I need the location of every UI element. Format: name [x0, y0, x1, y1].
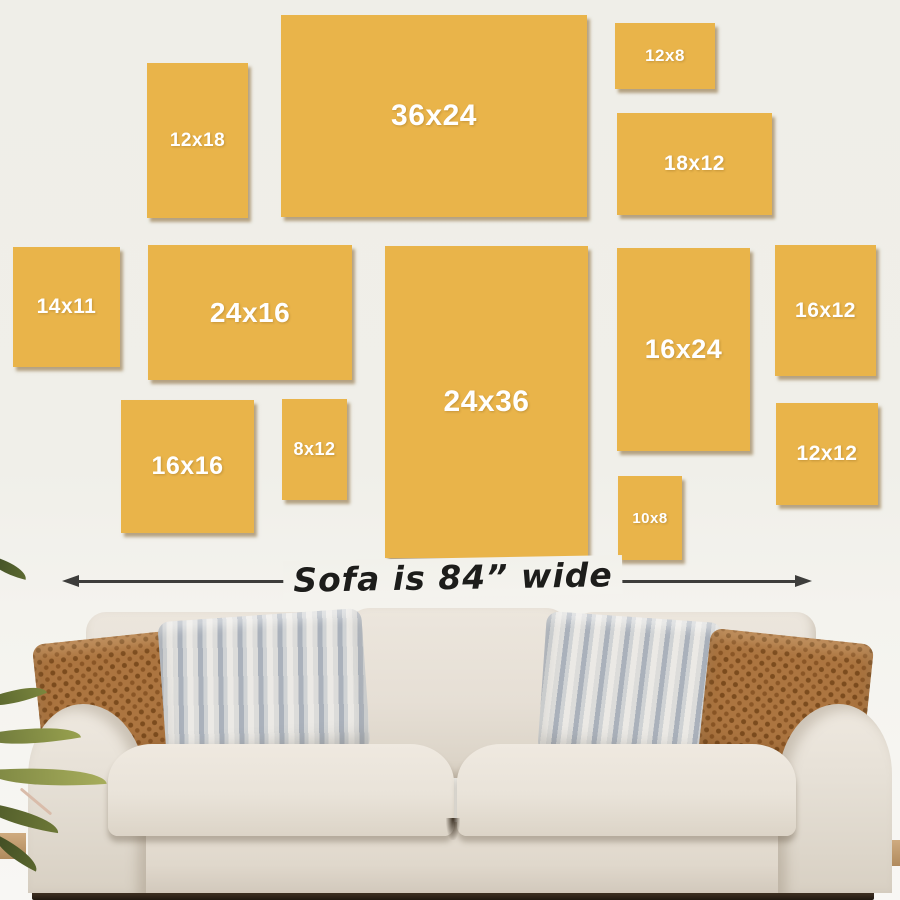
size-label: 12x18	[170, 130, 225, 152]
size-label: 24x36	[444, 385, 530, 419]
size-label: 24x16	[210, 297, 290, 329]
right-arrowhead-icon	[795, 575, 812, 587]
size-label: 8x12	[293, 439, 335, 460]
striped-throw-pillow-right	[537, 611, 722, 765]
sofa-seat-cushion-left	[108, 744, 454, 836]
size-panel-36x24: 36x24	[281, 15, 587, 217]
size-label: 12x8	[645, 46, 685, 66]
size-label: 16x16	[151, 452, 223, 481]
size-label: 10x8	[632, 510, 667, 527]
size-panel-8x12: 8x12	[282, 399, 347, 500]
size-label: 36x24	[391, 99, 477, 133]
sofa-seat-cushion-right	[457, 744, 796, 836]
size-panel-24x16: 24x16	[148, 245, 352, 380]
size-label: 16x24	[645, 334, 723, 365]
size-panel-12x8: 12x8	[615, 23, 715, 89]
size-panel-14x11: 14x11	[13, 247, 120, 367]
left-arrowhead-icon	[62, 575, 79, 587]
size-label: 12x12	[797, 442, 858, 466]
size-panel-16x12: 16x12	[775, 245, 876, 376]
sofa-width-label: Sofa is 84” wide	[283, 555, 623, 600]
size-panel-16x24: 16x24	[617, 248, 750, 451]
size-panel-12x18: 12x18	[147, 63, 248, 218]
size-label: 16x12	[795, 299, 856, 323]
size-panel-10x8: 10x8	[618, 476, 682, 560]
size-panel-12x12: 12x12	[776, 403, 878, 505]
size-label: 18x12	[664, 152, 725, 176]
plant-leaf	[0, 555, 29, 580]
seat-cushion-gap-shadow	[446, 818, 460, 840]
size-panel-24x36: 24x36	[385, 246, 588, 558]
wall-art-size-guide-scene: 36x2412x1812x818x1214x1124x1624x3616x241…	[0, 0, 900, 900]
size-panel-18x12: 18x12	[617, 113, 772, 215]
size-label: 14x11	[37, 295, 97, 319]
size-panel-16x16: 16x16	[121, 400, 254, 533]
striped-throw-pillow-left	[157, 608, 370, 764]
